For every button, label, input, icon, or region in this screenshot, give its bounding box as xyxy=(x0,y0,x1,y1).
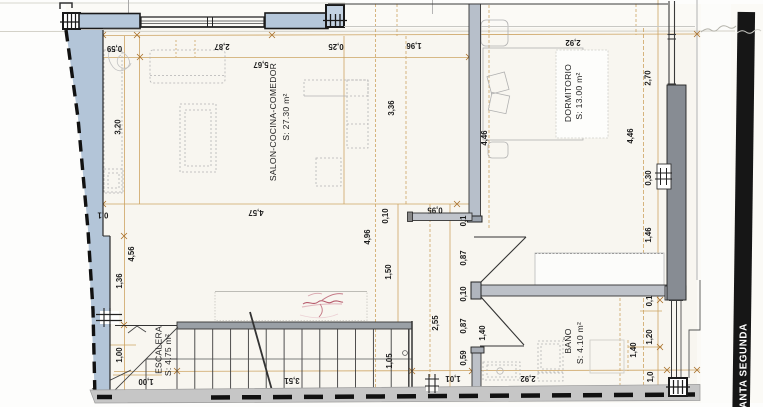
svg-text:1,0: 1,0 xyxy=(646,371,655,383)
svg-text:1,36: 1,36 xyxy=(115,273,124,289)
svg-text:4,46: 4,46 xyxy=(626,128,635,144)
svg-text:1,96: 1,96 xyxy=(406,41,422,50)
svg-text:S: 13.00 m²: S: 13.00 m² xyxy=(574,72,584,119)
svg-text:1,01: 1,01 xyxy=(445,374,461,383)
svg-text:3,51: 3,51 xyxy=(284,376,300,385)
svg-text:1,05: 1,05 xyxy=(385,353,394,369)
svg-text:4,56: 4,56 xyxy=(127,246,136,262)
svg-text:0,1: 0,1 xyxy=(97,211,109,220)
svg-text:0,10: 0,10 xyxy=(381,208,390,224)
svg-text:2,92: 2,92 xyxy=(565,38,581,47)
svg-text:5,67: 5,67 xyxy=(253,60,268,69)
svg-text:S: 4.10 m²: S: 4.10 m² xyxy=(575,322,585,364)
svg-text:4,57: 4,57 xyxy=(248,208,263,217)
svg-text:S: 4.75 m²: S: 4.75 m² xyxy=(163,334,173,376)
svg-text:1,50: 1,50 xyxy=(384,264,393,280)
svg-text:1,40: 1,40 xyxy=(629,342,638,358)
svg-text:4,96: 4,96 xyxy=(363,229,372,245)
svg-text:DORMITORIO: DORMITORIO xyxy=(563,64,573,122)
svg-text:1,00: 1,00 xyxy=(138,377,154,386)
svg-text:1,46: 1,46 xyxy=(644,227,653,243)
svg-text:0,10: 0,10 xyxy=(459,286,468,302)
svg-text:4,46: 4,46 xyxy=(480,130,489,146)
svg-text:2,55: 2,55 xyxy=(431,315,440,331)
svg-text:0,87: 0,87 xyxy=(459,250,468,265)
svg-text:0,1: 0,1 xyxy=(645,295,654,307)
svg-text:SALON-COCINA-COMEDOR: SALON-COCINA-COMEDOR xyxy=(268,63,278,181)
svg-text:ESCALERA: ESCALERA xyxy=(154,326,164,374)
svg-text:S: 27.30 m²: S: 27.30 m² xyxy=(281,93,291,140)
svg-text:1,40: 1,40 xyxy=(478,325,487,341)
svg-text:3,36: 3,36 xyxy=(387,100,396,116)
svg-text:3,20: 3,20 xyxy=(114,119,123,135)
svg-text:PLANTA SEGUNDA: PLANTA SEGUNDA xyxy=(739,323,750,407)
svg-text:0,59: 0,59 xyxy=(106,44,122,53)
svg-text:0,1: 0,1 xyxy=(459,215,468,227)
svg-text:0,87: 0,87 xyxy=(459,318,468,333)
svg-text:0,59: 0,59 xyxy=(459,350,468,366)
svg-text:0,25: 0,25 xyxy=(328,42,344,51)
svg-text:2,87: 2,87 xyxy=(214,42,229,51)
svg-text:0,30: 0,30 xyxy=(644,170,653,186)
svg-text:BAÑO: BAÑO xyxy=(563,328,573,353)
svg-text:0,95: 0,95 xyxy=(427,206,443,215)
svg-text:2,92: 2,92 xyxy=(520,374,536,383)
svg-text:1,00: 1,00 xyxy=(115,347,124,363)
svg-text:1,20: 1,20 xyxy=(645,329,654,345)
svg-text:2,70: 2,70 xyxy=(644,70,653,86)
